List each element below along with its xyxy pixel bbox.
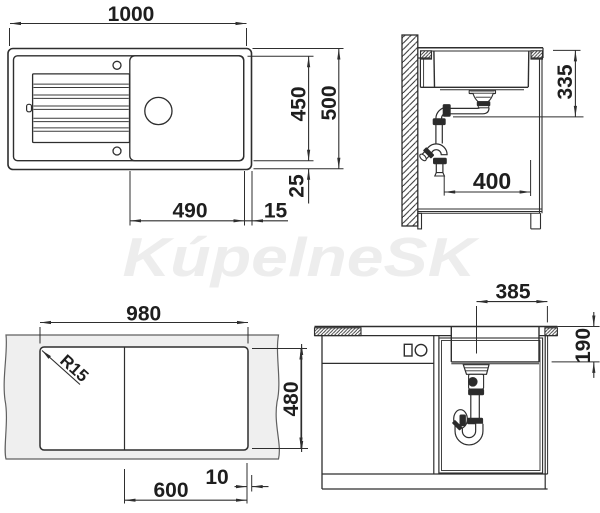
svg-text:385: 385 [495, 281, 530, 304]
svg-text:1000: 1000 [108, 3, 155, 26]
svg-text:980: 980 [126, 303, 161, 326]
svg-text:190: 190 [572, 328, 595, 363]
svg-text:400: 400 [473, 168, 511, 194]
svg-text:25: 25 [286, 174, 309, 198]
svg-text:500: 500 [318, 85, 341, 120]
svg-text:335: 335 [554, 64, 577, 99]
svg-text:10: 10 [205, 466, 228, 489]
svg-text:450: 450 [288, 86, 311, 121]
svg-text:600: 600 [153, 479, 188, 502]
svg-text:480: 480 [280, 381, 303, 416]
svg-text:15: 15 [264, 200, 288, 223]
svg-text:KúpelneSK: KúpelneSK [123, 226, 481, 288]
svg-text:490: 490 [172, 200, 207, 223]
